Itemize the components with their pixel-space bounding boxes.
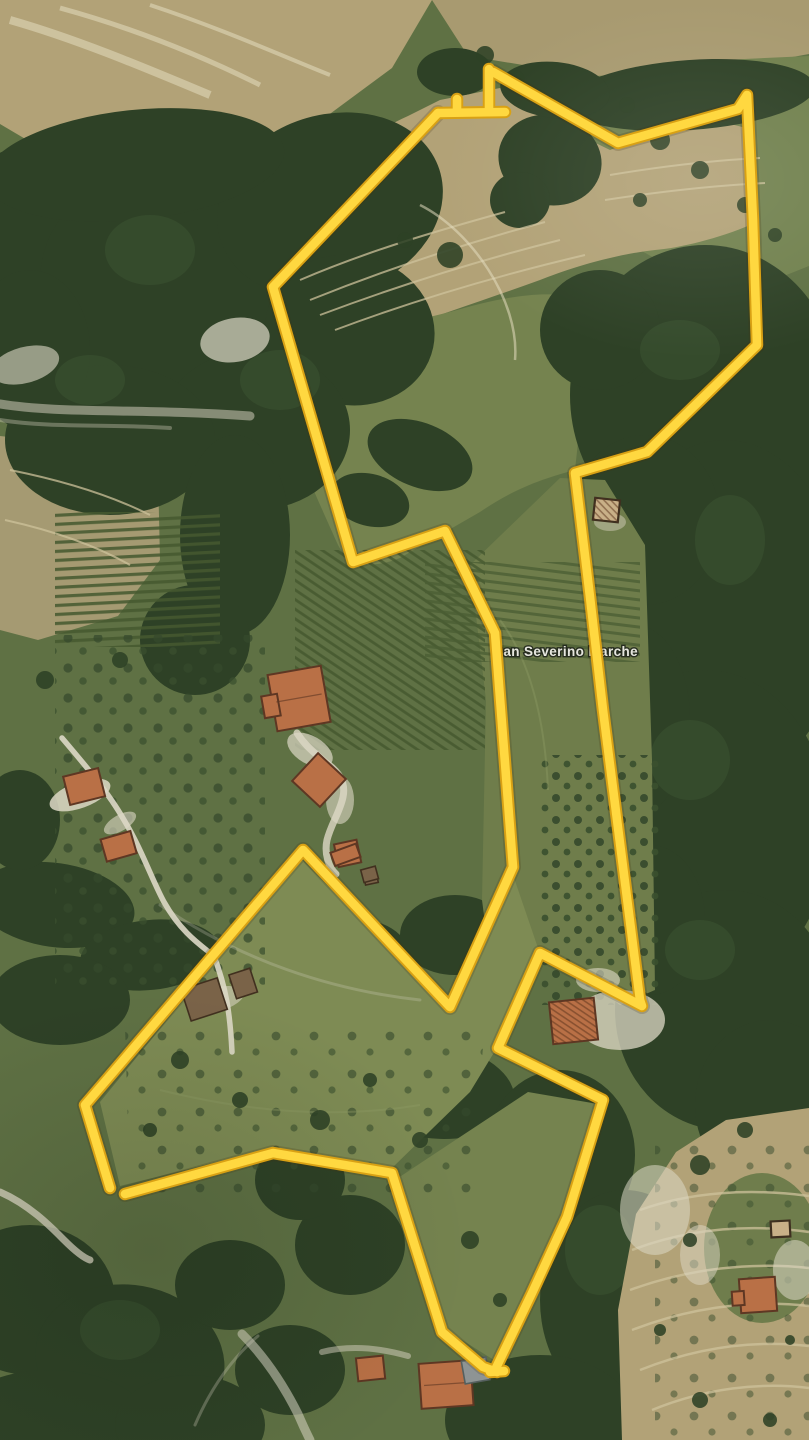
satellite-imagery: San Severino Marche [0,0,809,1440]
building [593,498,620,522]
satellite-map[interactable]: San Severino Marche [0,0,809,1440]
building [549,998,598,1044]
boundary-line-close-tail [490,1371,504,1372]
building [361,866,379,882]
boundary-line-top-bar [438,112,505,113]
place-label: San Severino Marche [494,644,638,659]
building [771,1220,791,1237]
